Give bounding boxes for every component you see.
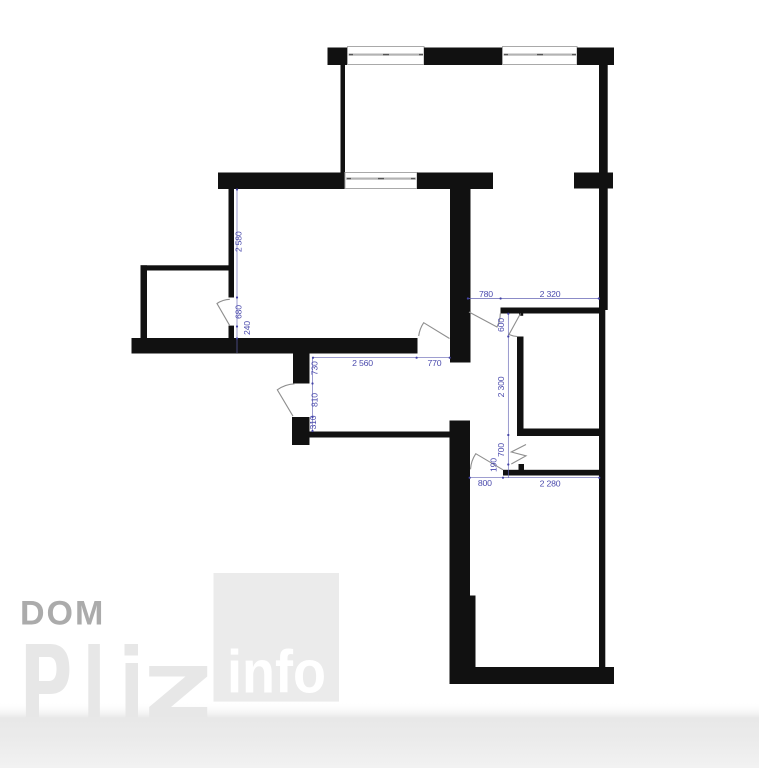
svg-text:800: 800 — [478, 478, 492, 488]
svg-text:310: 310 — [308, 415, 318, 429]
svg-text:2 560: 2 560 — [352, 358, 373, 368]
svg-text:600: 600 — [496, 318, 506, 332]
svg-text:780: 780 — [479, 289, 493, 299]
svg-text:730: 730 — [309, 361, 319, 375]
svg-text:700: 700 — [496, 443, 506, 457]
svg-text:2 580: 2 580 — [234, 231, 244, 252]
svg-text:680: 680 — [234, 305, 244, 319]
svg-text:190: 190 — [488, 458, 498, 472]
svg-text:2 300: 2 300 — [496, 376, 506, 397]
svg-text:240: 240 — [242, 321, 252, 335]
svg-text:2 320: 2 320 — [540, 289, 561, 299]
svg-text:770: 770 — [428, 358, 442, 368]
svg-text:2 280: 2 280 — [540, 478, 561, 488]
svg-text:info: info — [227, 639, 326, 706]
svg-text:DOM: DOM — [20, 595, 105, 633]
svg-text:810: 810 — [309, 393, 319, 407]
